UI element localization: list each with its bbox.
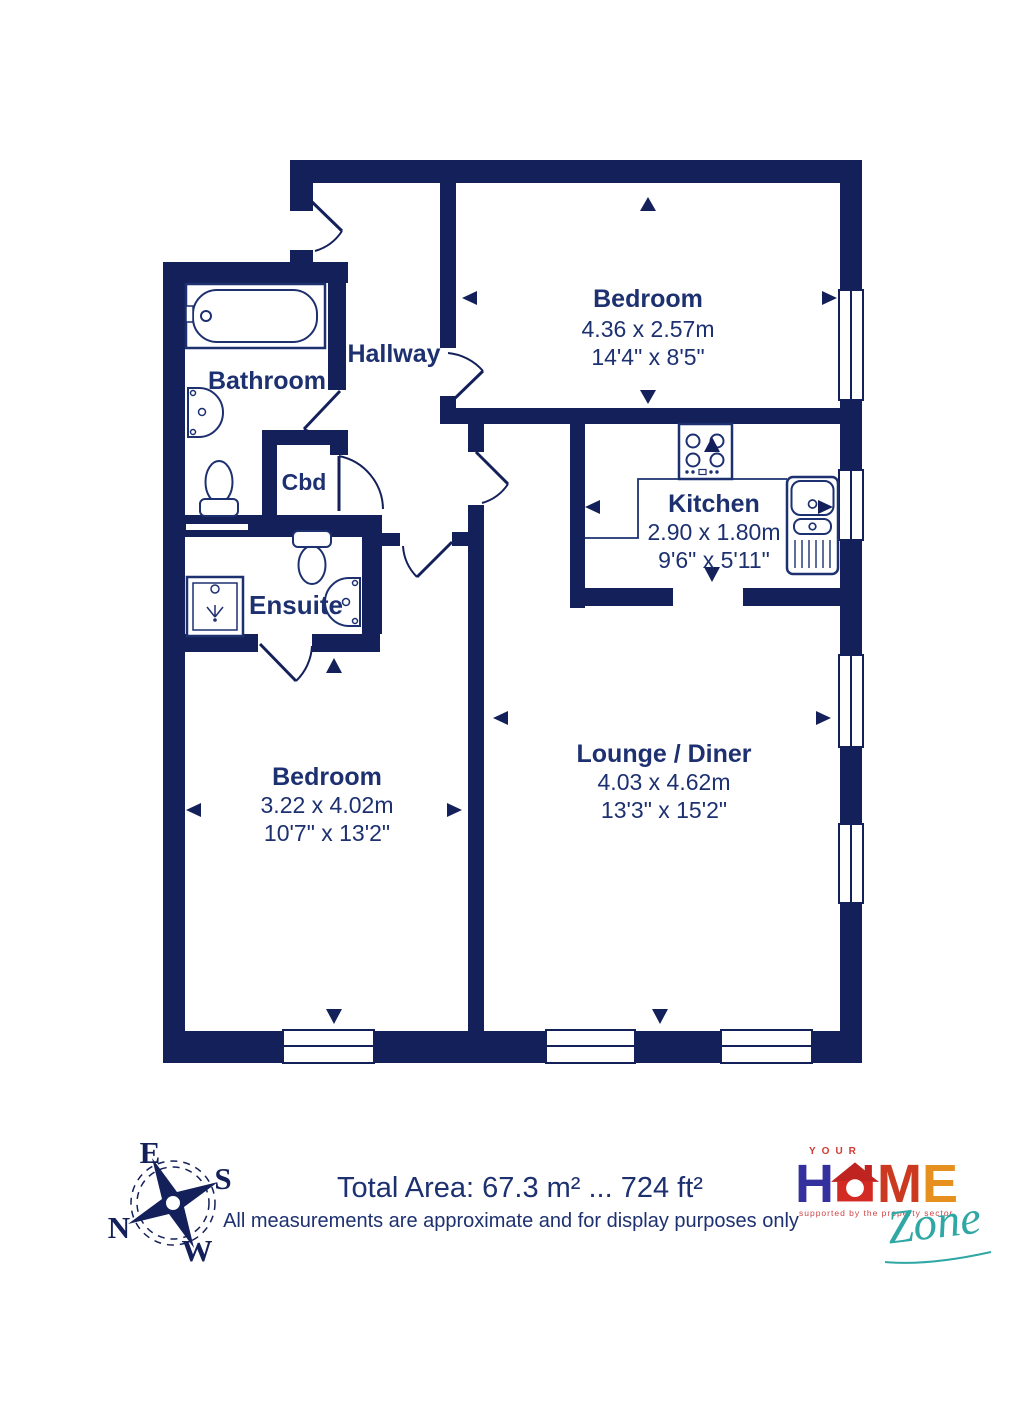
arrow-down-icon xyxy=(640,390,656,404)
room-label-lounge: Lounge / Diner xyxy=(577,742,752,767)
arrow-right-icon xyxy=(822,291,837,305)
room-dim-imperial-kitchen: 9'6" x 5'11" xyxy=(658,549,770,572)
room-label-bathroom: Bathroom xyxy=(208,369,326,394)
arrow-right-icon xyxy=(816,711,831,725)
room-dim-imperial-lounge: 13'3" x 15'2" xyxy=(601,799,727,822)
room-dim-metric-kitchen: 2.90 x 1.80m xyxy=(648,521,781,544)
window-lounge-bottom-2 xyxy=(721,1030,812,1063)
window-kitchen xyxy=(839,470,863,540)
disclaimer-text: All measurements are approximate and for… xyxy=(223,1210,799,1233)
arrow-left-icon xyxy=(585,500,600,514)
ensuite-toilet-icon xyxy=(293,531,331,584)
windows xyxy=(283,290,863,1063)
window-lounge-2 xyxy=(839,824,863,903)
door-cbd xyxy=(339,456,383,511)
arrow-left-icon xyxy=(493,711,508,725)
arrow-right-icon xyxy=(447,803,462,817)
compass-west-label: W xyxy=(182,1233,213,1269)
window-bedroom-bottom xyxy=(283,1030,374,1063)
door-bathroom xyxy=(304,391,340,433)
logo-zone-text: Zone xyxy=(884,1194,983,1252)
arrow-up-icon xyxy=(640,197,656,211)
window-bedroom-top xyxy=(839,290,863,400)
door-bedroom-bottom xyxy=(403,542,452,577)
door-ensuite xyxy=(260,644,312,681)
kitchen-sink-unit-icon xyxy=(787,477,838,574)
arrow-up-icon xyxy=(326,658,342,673)
room-dim-metric-bedroom-top: 4.36 x 2.57m xyxy=(582,318,715,341)
room-label-ensuite: Ensuite xyxy=(249,592,343,618)
room-label-hallway: Hallway xyxy=(347,342,440,367)
arrow-left-icon xyxy=(462,291,477,305)
home-zone-logo: YOUR H M E supported by the property sec… xyxy=(795,1146,1005,1266)
bathtub-icon xyxy=(186,284,325,348)
arrow-left-icon xyxy=(186,803,201,817)
window-lounge-1 xyxy=(839,655,863,747)
logo-letter-h: H xyxy=(795,1162,834,1208)
window-lounge-bottom-1 xyxy=(546,1030,635,1063)
bathroom-sink-icon xyxy=(188,388,223,437)
compass-east-label: E xyxy=(140,1135,161,1171)
room-dim-metric-bedroom-bottom: 3.22 x 4.02m xyxy=(261,794,394,817)
bathroom-toilet-icon xyxy=(200,461,238,516)
compass-south-label: S xyxy=(214,1161,231,1197)
arrow-down-icon xyxy=(326,1009,342,1024)
room-label-cbd: Cbd xyxy=(282,471,327,494)
house-icon xyxy=(831,1158,879,1209)
shower-icon xyxy=(187,577,243,636)
room-dim-metric-lounge: 4.03 x 4.62m xyxy=(598,771,731,794)
room-label-bedroom-top: Bedroom xyxy=(593,287,703,312)
room-label-kitchen: Kitchen xyxy=(668,492,760,517)
room-dim-imperial-bedroom-top: 14'4" x 8'5" xyxy=(591,346,704,369)
total-area-text: Total Area: 67.3 m² ... 724 ft² xyxy=(337,1172,703,1205)
room-label-bedroom-bottom: Bedroom xyxy=(272,765,382,790)
compass-north-label: N xyxy=(108,1210,130,1246)
arrow-down-icon xyxy=(652,1009,668,1024)
logo-swoosh xyxy=(883,1250,995,1264)
floorplan-page: Bedroom 4.36 x 2.57m 14'4" x 8'5" Hallwa… xyxy=(0,0,1024,1404)
door-lounge xyxy=(476,452,508,503)
door-entrance xyxy=(308,198,342,251)
room-dim-imperial-bedroom-bottom: 10'7" x 13'2" xyxy=(264,822,390,845)
wall-slit xyxy=(186,524,248,530)
